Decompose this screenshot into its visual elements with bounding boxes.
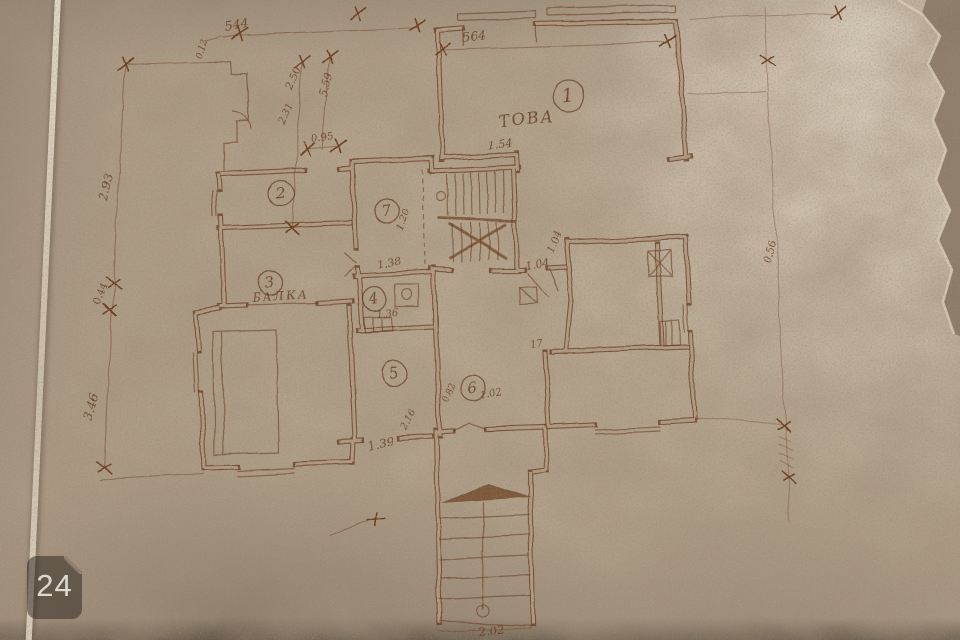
dim-label-19: 1.39 — [367, 433, 396, 452]
dimension-ticks — [96, 5, 846, 529]
walls — [196, 21, 694, 624]
dim-label-5: 5.59 — [317, 71, 336, 98]
dim-label-0: 544 — [223, 16, 250, 35]
note-БАЛКА: БАЛКА — [251, 287, 309, 305]
watermark-number: 24 — [36, 568, 72, 604]
stairwell — [423, 170, 517, 268]
wc-fixture — [519, 287, 538, 304]
dim-label-9: 3.46 — [81, 392, 101, 422]
room-number-labels: 1237456 — [259, 80, 583, 401]
floor-plan-drawing: 1237456 5440.125642.502.315.590.952.930.… — [0, 0, 960, 640]
room-number-4: 4 — [366, 289, 379, 308]
photo-of-floor-plan: 1237456 5440.125642.502.315.590.952.930.… — [0, 0, 960, 640]
fixtures — [364, 250, 680, 346]
dim-label-21: 0.56 — [762, 239, 778, 264]
dim-label-6: 0.95 — [311, 132, 335, 146]
entrance-stairs — [439, 483, 532, 626]
room-number-5: 5 — [387, 363, 400, 383]
dim-label-15: 1.04 — [545, 230, 564, 255]
dim-label-18: 2.16 — [398, 407, 419, 433]
room-number-7: 7 — [380, 201, 392, 220]
room-number-1: 1 — [560, 84, 574, 106]
note-ТОВА: ТОВА — [499, 106, 557, 132]
dim-label-8: 0.44 — [92, 281, 109, 306]
dim-label-11: 1.20 — [395, 207, 413, 232]
dim-label-1: 0.12 — [195, 37, 211, 59]
dim-label-2: 564 — [461, 29, 487, 47]
dim-label-7: 2.93 — [96, 172, 116, 203]
dim-label-16: 0.82 — [441, 381, 457, 404]
dim-label-4: 2.31 — [276, 102, 296, 128]
dim-label-13: 1.36 — [376, 307, 400, 321]
entrance-canopy — [441, 483, 531, 503]
room-number-2: 2 — [273, 182, 287, 202]
dim-label-22: 2.02 — [476, 622, 505, 639]
dim-label-10: 1.54 — [487, 137, 513, 152]
dim-label-17: 1.02 — [480, 387, 504, 401]
kitchen-sink — [395, 285, 419, 306]
watermark-badge: 24 — [27, 556, 82, 619]
room-number-6: 6 — [466, 377, 479, 397]
stair-direction-cross — [449, 224, 507, 259]
dim-label-20: 17 — [529, 338, 544, 351]
dim-label-12: 1.38 — [376, 254, 402, 271]
